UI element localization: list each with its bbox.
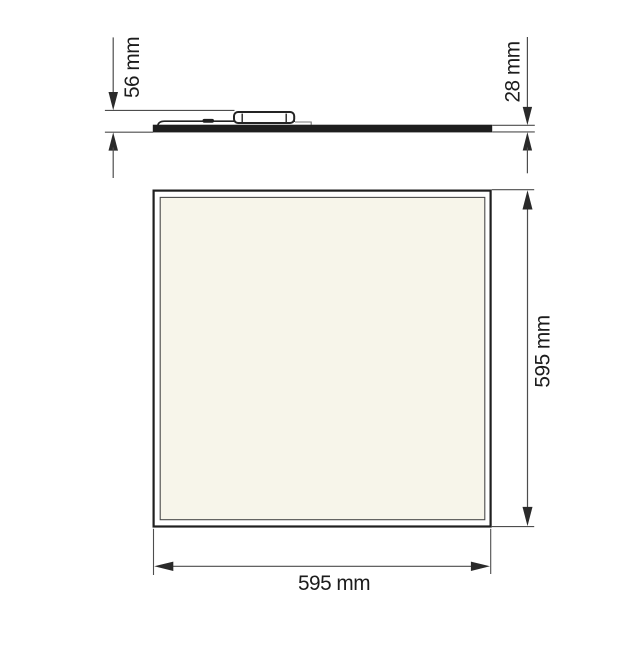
svg-text:595 mm: 595 mm: [298, 572, 370, 595]
svg-text:56 mm: 56 mm: [121, 37, 144, 98]
svg-text:28 mm: 28 mm: [501, 41, 524, 102]
svg-text:595 mm: 595 mm: [531, 315, 554, 387]
